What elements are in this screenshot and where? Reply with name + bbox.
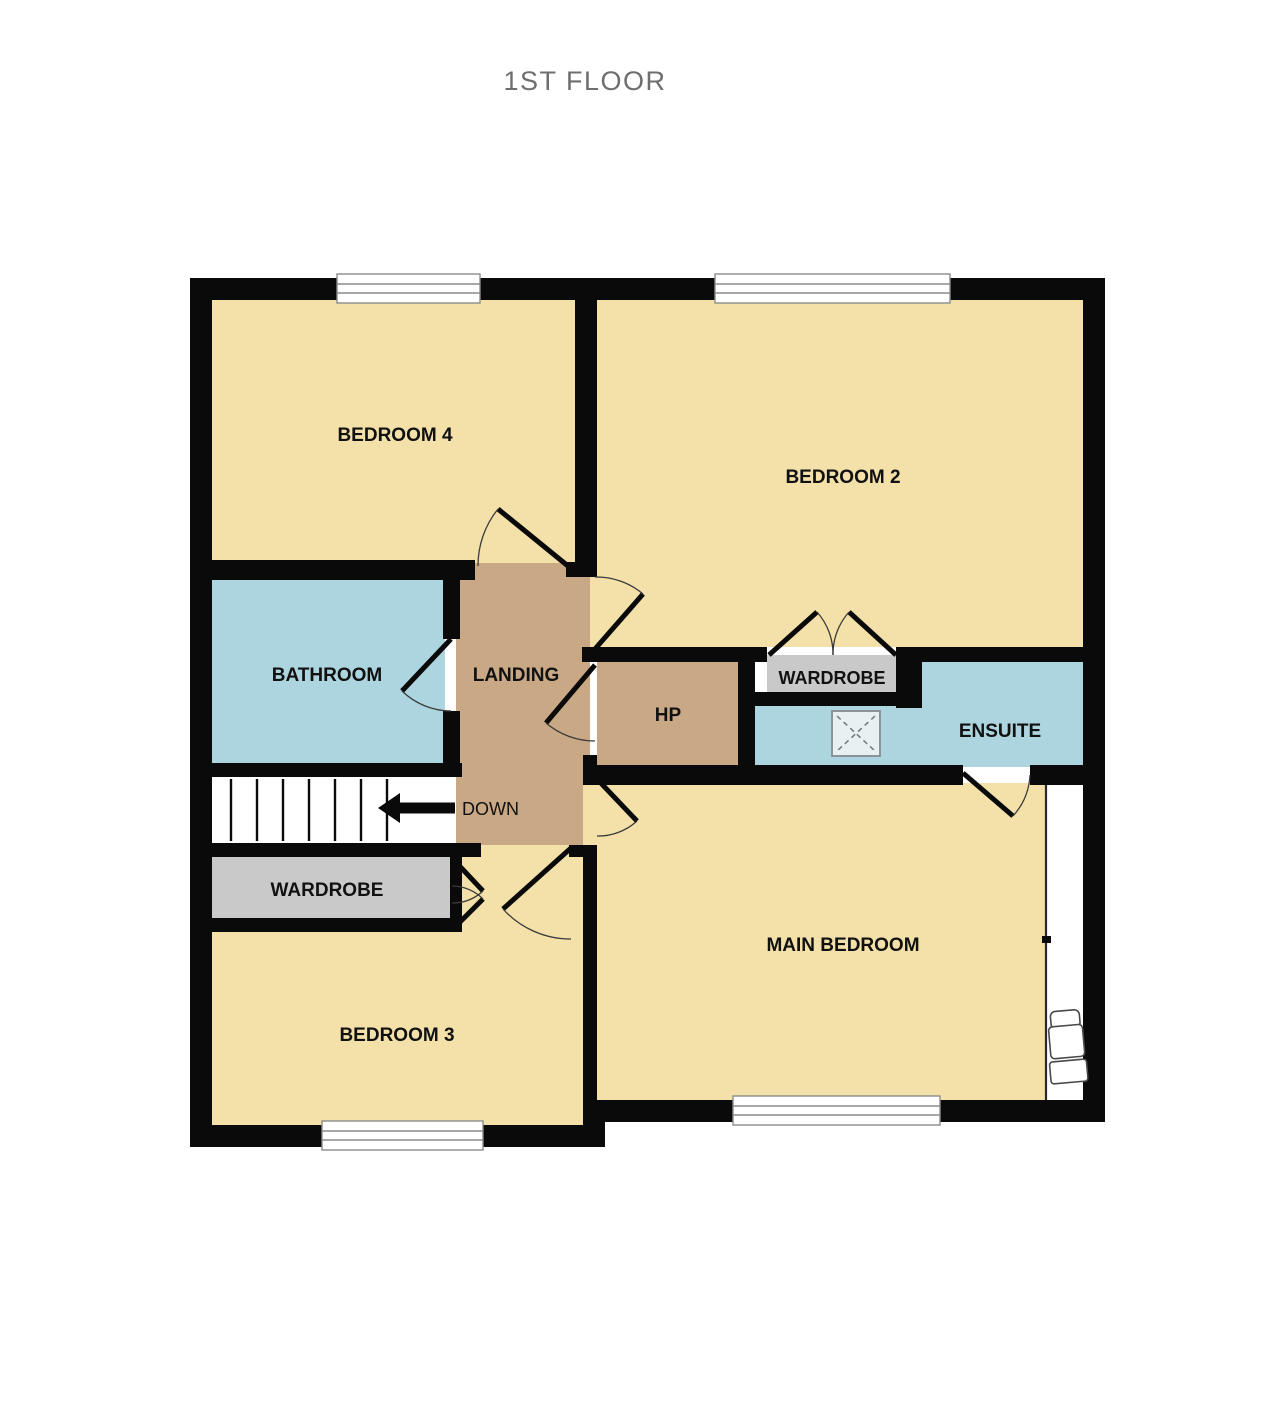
window-bedroom-3 (322, 1121, 483, 1150)
wall-hp-right (738, 647, 755, 783)
recess-divider-notch (1042, 936, 1051, 943)
floor-plan-svg: 1ST FLOOR (0, 0, 1280, 1421)
bedroom-3-label: BEDROOM 3 (339, 1025, 454, 1046)
bathroom-label: BATHROOM (272, 665, 382, 686)
wall-below-wardrobe-left (190, 918, 462, 932)
wall-below-stairs (190, 843, 481, 857)
main-bedroom-label: MAIN BEDROOM (766, 935, 919, 956)
window-bedroom-2 (715, 274, 950, 303)
wall-below-bed4 (190, 560, 475, 580)
landing-label: LANDING (473, 665, 560, 686)
wall-bed2-south-right (922, 647, 1085, 662)
wall-bed4-bed2-stub (566, 562, 597, 577)
wall-bathroom-right-upper (443, 562, 460, 639)
wall-main-bedroom-top-left (583, 765, 963, 785)
hp-label: HP (655, 705, 682, 726)
wall-main-bedroom-top-right (1030, 765, 1085, 785)
stairs-direction-label: DOWN (462, 799, 519, 819)
wall-bed3-main-stub (569, 845, 597, 857)
wall-exterior-right (1083, 278, 1105, 1122)
wall-bed4-bed2 (575, 300, 597, 577)
wall-exterior-left (190, 278, 212, 1147)
wall-bed3-main (583, 845, 597, 1125)
wardrobe-top-label: WARDROBE (779, 668, 886, 688)
bedroom-2-label: BEDROOM 2 (785, 467, 900, 488)
ensuite-floor-upper (922, 662, 1085, 708)
wardrobe-left-label: WARDROBE (271, 880, 384, 901)
wall-exterior-top (190, 278, 1105, 300)
page-title: 1ST FLOOR (503, 66, 666, 96)
shower-tray-icon (832, 711, 880, 756)
ensuite-label: ENSUITE (959, 721, 1041, 742)
wall-below-wardrobe-top (755, 692, 922, 706)
floor-plan-page: 1ST FLOOR (0, 0, 1280, 1421)
wall-above-stairs (190, 763, 462, 777)
bedroom-4-label: BEDROOM 4 (337, 425, 453, 446)
window-bedroom-4 (337, 274, 480, 303)
window-main-bedroom (733, 1096, 940, 1125)
